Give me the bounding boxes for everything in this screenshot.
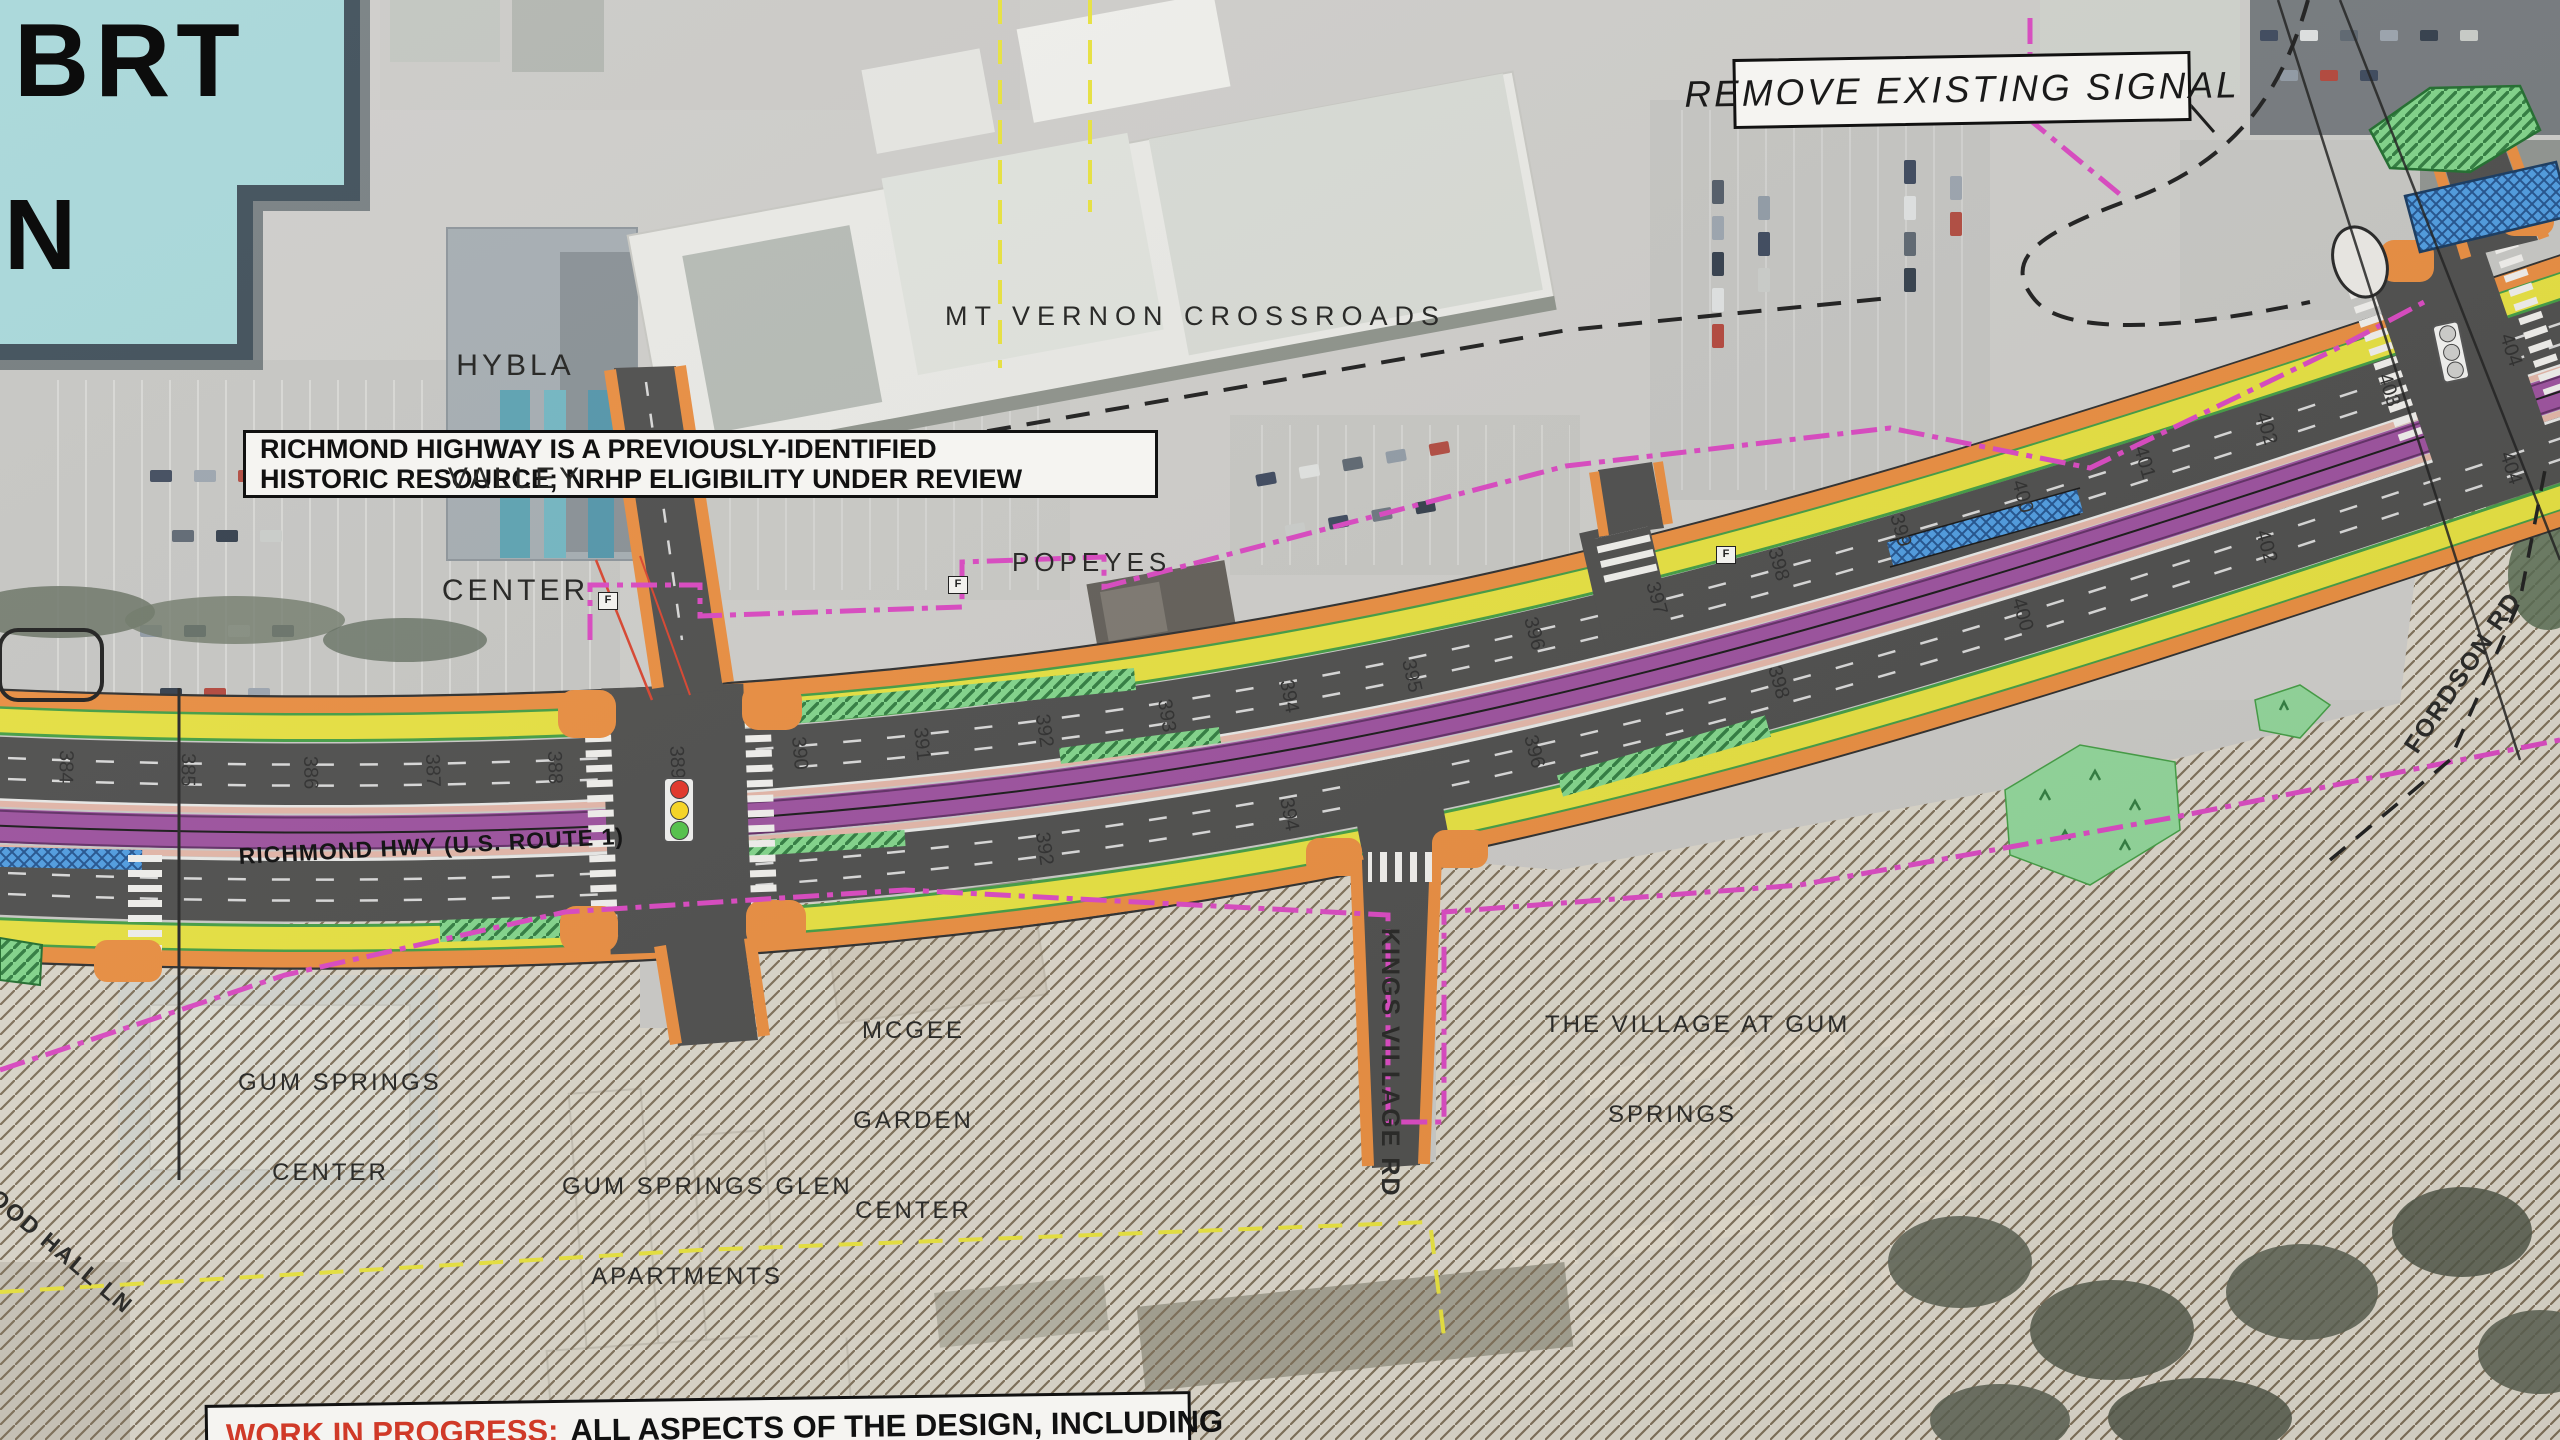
remove-signal-text: REMOVE EXISTING SIGNAL [1684,64,2240,116]
signal-empty-lens [2441,342,2461,362]
photo-vignette [0,0,2560,1440]
gum-springs-glen-line1: GUM SPRINGS GLEN [562,1172,812,1202]
signal-empty-lens [2437,324,2457,344]
gum-springs-center-line1: GUM SPRINGS [238,1068,423,1098]
mcgee-line2: GARDEN [836,1106,991,1136]
signal-empty-lens [2445,360,2465,380]
plan-sheet: 384 385 386 387 388 389 390 391 392 393 … [0,0,2560,1440]
survey-flag-icon: F [1716,546,1736,564]
work-in-progress-highlight: WORK IN PROGRESS: [226,1413,559,1440]
popeyes-label: POPEYES [1012,546,1171,579]
gum-springs-center-label: GUM SPRINGS CENTER [238,1008,423,1218]
plan-map-svg: 384 385 386 387 388 389 390 391 392 393 … [0,0,2560,1440]
work-in-progress-text: ALL ASPECTS OF THE DESIGN, INCLUDING [570,1404,1223,1440]
survey-flag-icon: F [948,576,968,594]
village-at-gum-springs-label: THE VILLAGE AT GUM SPRINGS [1545,950,1800,1160]
mt-vernon-crossroads-label: MT VERNON CROSSROADS [945,300,1446,334]
signal-red-lens [670,780,689,799]
mcgee-line3: CENTER [836,1196,991,1226]
mcgee-line1: MCGEE [836,1016,991,1046]
village-line2: SPRINGS [1545,1100,1800,1130]
title-block-brt-text: BRT [14,2,246,121]
remove-signal-callout: REMOVE EXISTING SIGNAL [1732,51,2191,129]
hybla-line2: VALLEY [398,460,633,498]
kings-village-rd-label: KINGS VILLAGE RD [1374,928,1405,1198]
hybla-line1: HYBLA [398,347,633,385]
mcgee-garden-center-label: MCGEE GARDEN CENTER [836,956,991,1256]
survey-flag-icon: F [598,592,618,610]
gum-springs-center-line2: CENTER [238,1158,423,1188]
gum-springs-glen-line2: APARTMENTS [562,1262,812,1292]
signal-yellow-lens [670,801,689,820]
signal-green-lens [670,821,689,840]
historic-resource-callout: RICHMOND HIGHWAY IS A PREVIOUSLY-IDENTIF… [243,430,1158,498]
village-line1: THE VILLAGE AT GUM [1545,1010,1800,1040]
traffic-signal-icon [663,777,695,843]
hybla-valley-center-label: HYBLA VALLEY CENTER [398,272,633,647]
historic-resource-line2: HISTORIC RESOURCE; NRHP ELIGIBILITY UNDE… [260,464,1022,494]
north-label: N [4,178,76,293]
gum-springs-glen-label: GUM SPRINGS GLEN APARTMENTS [562,1112,812,1322]
